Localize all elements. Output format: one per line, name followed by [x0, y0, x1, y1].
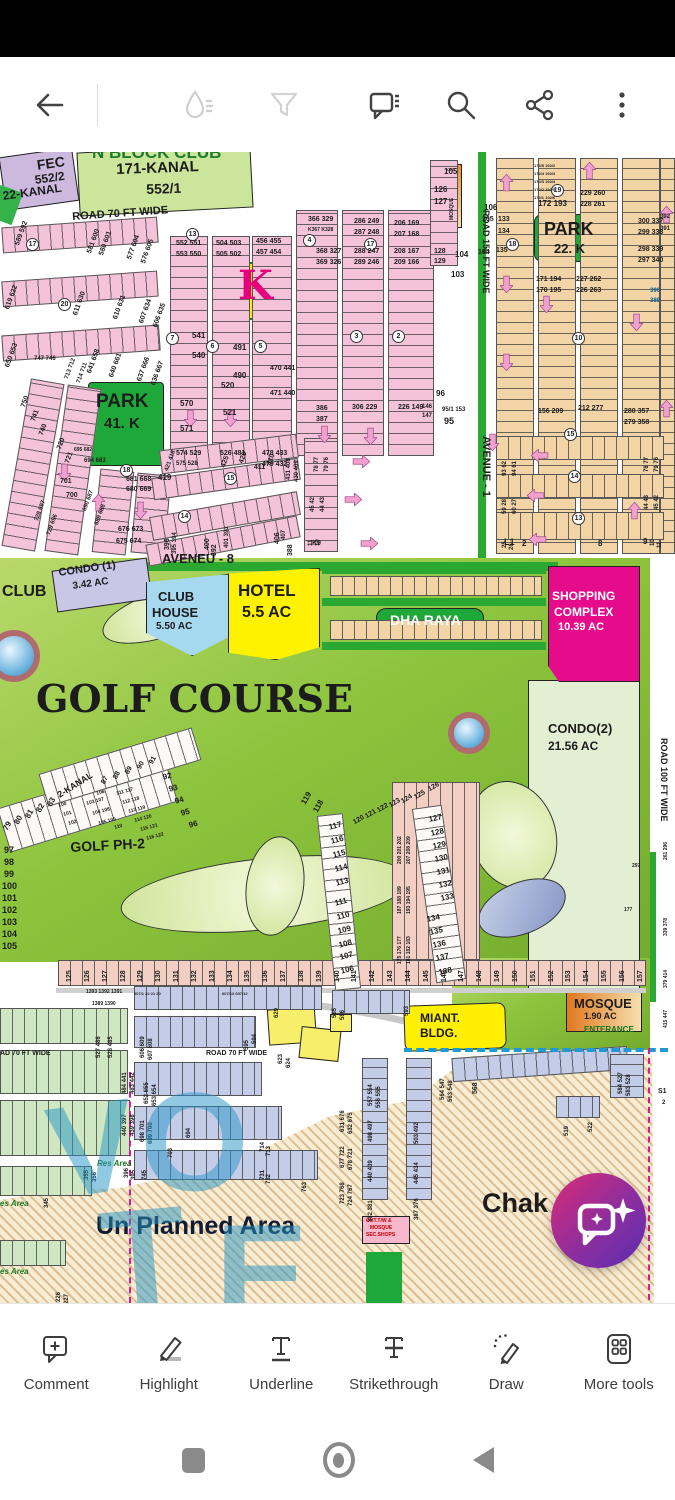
- comments-list-icon[interactable]: [366, 87, 402, 123]
- plot-label: 636 667: [150, 360, 165, 386]
- plot-label: 207 208 209: [407, 836, 412, 864]
- plot-label: 575 528: [176, 461, 198, 467]
- golf-course-area-2: [452, 958, 650, 1050]
- plot-label: 141: [351, 970, 358, 982]
- plot-strip: [134, 1150, 318, 1180]
- plot-label: 731: [260, 1170, 266, 1180]
- plot-label: es Area: [0, 1268, 29, 1276]
- plot-label: 114: [334, 863, 349, 874]
- plot-label: 593: [404, 1006, 410, 1016]
- plot-label: 568: [472, 1082, 479, 1094]
- back-button[interactable]: [473, 1447, 494, 1473]
- plot-label: 79 76: [324, 457, 330, 472]
- plot-label: 144: [405, 970, 412, 982]
- plot-label: 156: [619, 970, 626, 982]
- plot-label: 387: [316, 416, 328, 423]
- plot-label: 135: [244, 970, 251, 982]
- plot-label: 142: [369, 970, 376, 982]
- k-marker-letter: K: [238, 266, 273, 306]
- plot-label: L1: [504, 538, 515, 547]
- plot-label: 279 358: [624, 419, 649, 426]
- plot-label: 206 169: [394, 220, 419, 227]
- plot-label: 390: [650, 288, 660, 294]
- direction-arrow: [500, 348, 513, 371]
- plot-label: 478 433: [262, 450, 287, 457]
- plot-label: 583 528: [626, 1074, 632, 1096]
- plot-label: 140: [334, 970, 341, 982]
- plot-label: 155: [601, 970, 608, 982]
- plot-label: 95/1 153: [442, 407, 465, 413]
- status-bar: [0, 0, 675, 57]
- avenue8-label: AVENEU - 8: [162, 552, 234, 565]
- plot-strip: [170, 236, 208, 454]
- strikethrough-tool[interactable]: Strikethrough: [338, 1304, 451, 1421]
- plot-label: 100: [2, 882, 17, 891]
- plot-label: 440 439: [368, 1160, 374, 1182]
- plot-strip: [332, 990, 410, 1014]
- plot-label: 2-KANAL: [56, 771, 94, 800]
- direction-arrow: [364, 422, 377, 445]
- plot-label: ROAD 70 FT WIDE: [206, 1050, 267, 1057]
- plot-label: 104: [2, 930, 17, 939]
- search-icon[interactable]: [444, 88, 478, 122]
- plot-label: 280 357: [624, 408, 649, 415]
- plot-label: 132: [191, 970, 198, 982]
- plot-label: 152: [548, 970, 555, 982]
- plot-strip: [252, 236, 292, 454]
- yellow-patch: [298, 1026, 341, 1062]
- plot-strip: [392, 782, 480, 960]
- plot-label: 426: [238, 451, 249, 464]
- plot-label: 556 555: [376, 1086, 382, 1108]
- plot-strip: [538, 158, 576, 554]
- pond: [0, 630, 40, 682]
- plot-label: 678 721: [348, 1148, 354, 1170]
- plot-label: 130: [434, 853, 449, 864]
- direction-arrow: [355, 537, 378, 550]
- plot-label: 11: [308, 540, 314, 546]
- plot-label: 521: [223, 409, 236, 417]
- plot-label: 124: [400, 793, 414, 805]
- draw-tool-label: Draw: [489, 1376, 524, 1393]
- svg-text:DHA: DHA: [350, 806, 433, 839]
- plot-label: 172 193: [538, 200, 567, 208]
- toolbar-divider: [97, 84, 98, 126]
- plot-label: 526 481: [220, 450, 245, 457]
- plot-label: 120: [352, 814, 366, 826]
- yellow-patch: [330, 1014, 352, 1032]
- plot-label: 172/3 192/4: [534, 180, 555, 184]
- annotation-toolbar: Comment Highlight Underline Strikethroug…: [0, 1303, 675, 1421]
- plot-label: 172/2 192/5: [534, 188, 555, 192]
- underline-icon: [264, 1332, 298, 1366]
- plot-strip: [342, 210, 384, 456]
- plot-label: 93: [168, 784, 179, 794]
- overflow-menu-icon[interactable]: [610, 88, 634, 122]
- plot-label: 439 398: [130, 1114, 136, 1136]
- dha-raya-box: [376, 608, 484, 632]
- chat-sparkle-icon: [551, 1173, 646, 1268]
- plot-label: 113 119: [128, 805, 146, 814]
- recents-button[interactable]: [182, 1448, 205, 1473]
- plot-label: 1.90 AC: [584, 1012, 617, 1021]
- direction-arrow: [527, 489, 550, 502]
- plot-label: 112 118: [122, 796, 140, 805]
- road-number-badge: 20: [58, 298, 71, 311]
- plot-label: 87: [100, 775, 110, 785]
- plot-strip: [1, 271, 158, 308]
- plot-label: 127: [428, 813, 443, 824]
- dha-green-bar: [322, 598, 546, 606]
- plot-label: 745: [142, 1170, 148, 1180]
- plot-label: 181 182 183: [407, 936, 412, 964]
- watermark-letter: E: [215, 1204, 308, 1303]
- draw-tool[interactable]: Draw: [450, 1304, 563, 1421]
- plot-label: 703: [168, 1148, 174, 1158]
- plot-label: 610 631: [112, 294, 127, 320]
- plot-label: 110: [114, 824, 123, 831]
- plot-label: 300 337: [638, 218, 663, 225]
- dha-raya-label: DHA RAYA: [390, 613, 461, 627]
- plot-label: 606 609: [140, 1036, 146, 1058]
- plot-label: 128: [120, 970, 127, 982]
- fec-label: FEC: [36, 154, 66, 172]
- enterance-label: ENTERANCE: [584, 1026, 634, 1034]
- plot-label: 187 188 189: [398, 886, 403, 914]
- plot-label: 445 434: [414, 1162, 420, 1184]
- plot-label: 410: [266, 453, 277, 466]
- road150-label: ROAD 150 FT WIDE: [481, 210, 490, 294]
- direction-arrow: [583, 162, 596, 185]
- condo1-label: CONDO (1): [58, 560, 116, 579]
- plot-strip: [412, 805, 466, 983]
- plot-label: 95: [180, 808, 191, 818]
- plot-label: 80: [13, 814, 24, 826]
- plot-label: 356: [92, 1172, 98, 1182]
- boundary-pink-dashdot: [648, 1048, 650, 1300]
- clubhouse-area: [146, 574, 230, 656]
- road-number-badge: 5: [254, 340, 267, 353]
- plot-label: 411: [254, 464, 265, 471]
- plot-label: 552/1: [146, 181, 182, 196]
- plot-strip: [159, 434, 299, 475]
- plot-label: 105: [444, 168, 457, 176]
- plot-label: 540: [192, 352, 205, 360]
- pond: [448, 712, 490, 754]
- road-number-badge: 18: [506, 238, 519, 251]
- share-icon[interactable]: [522, 87, 558, 123]
- road-number-badge: 4: [303, 234, 316, 247]
- plot-strip: [622, 158, 660, 554]
- direction-arrow: [92, 494, 105, 517]
- plot-label: 101: [2, 894, 17, 903]
- unplanned-label: Un Planned Area: [96, 1214, 295, 1239]
- plot-label: 79: [2, 820, 13, 832]
- direction-arrow: [224, 404, 237, 427]
- plot-label: 44 43: [320, 497, 326, 512]
- plot-label: SEC.SHOPS: [366, 1233, 395, 1238]
- app-toolbar: [0, 57, 675, 152]
- road-number-badge: 14: [178, 510, 191, 523]
- plot-label: HOUSE: [152, 606, 198, 619]
- more-tools-label: More tools: [584, 1376, 654, 1393]
- plot-label: 586: [340, 1010, 346, 1020]
- plot-label: es Area: [0, 1200, 29, 1208]
- plot-label: 396: [164, 538, 171, 550]
- plot-strip: [330, 576, 542, 596]
- plot-label: 45 42: [310, 497, 316, 512]
- comment-plus-icon: [39, 1332, 73, 1366]
- plot-label: 143: [387, 970, 394, 982]
- plot-label: 677 722: [340, 1146, 346, 1168]
- plot-label: 750: [20, 395, 31, 408]
- plot-label: 401 391: [224, 526, 230, 548]
- shopping-area: [548, 566, 640, 682]
- plot-label: 137: [435, 952, 450, 963]
- plot-label: 119: [300, 791, 313, 806]
- road-number-badge: 3: [350, 330, 363, 343]
- golf-blob: [96, 575, 224, 656]
- plot-label: 2: [522, 540, 526, 548]
- plot-label: 505 502: [216, 251, 241, 258]
- plot-label: 699 700: [148, 1122, 154, 1144]
- plot-label: 490: [233, 372, 246, 380]
- plot-label: 130: [155, 970, 162, 982]
- plot-label: MOSQUE: [450, 198, 455, 220]
- plot-label: 122: [376, 802, 390, 814]
- road100-label: ROAD 100 FT WIDE: [659, 738, 668, 822]
- comment-tool[interactable]: Comment: [0, 1304, 113, 1421]
- plot-label: 126: [84, 970, 91, 982]
- plot-label: 400: [204, 538, 211, 550]
- plot-label: 456 455: [256, 238, 281, 245]
- plot-strip: [388, 210, 434, 456]
- plot-label: 102: [68, 820, 77, 827]
- park-41k: [88, 382, 164, 466]
- plot-label: 729 696: [46, 514, 59, 536]
- plot-strip: [58, 960, 646, 986]
- plot-label: 104: [455, 251, 468, 259]
- plot-label: 106: [340, 965, 355, 976]
- plot-strip: [296, 210, 338, 456]
- plot-strip: [406, 1058, 432, 1200]
- plot-label: 611 630: [72, 291, 87, 317]
- plot-strip: [0, 1100, 130, 1156]
- plot-label: 129: [137, 970, 144, 982]
- plot-label: 147: [458, 970, 465, 982]
- more-tools-grid-icon: [602, 1332, 636, 1366]
- plot-label: 607 608: [148, 1038, 154, 1060]
- plot-label: 229 260: [580, 190, 605, 197]
- plot-label: 207 168: [394, 231, 419, 238]
- plot-label: 105: [482, 216, 494, 223]
- filter-icon[interactable]: [267, 88, 301, 122]
- plot-label: 355: [84, 1170, 90, 1180]
- plot-label: 391: [660, 226, 670, 232]
- plot-label: 396: [124, 1168, 130, 1178]
- plot-label: 95: [444, 417, 454, 426]
- strikethrough-tool-label: Strikethrough: [349, 1376, 438, 1393]
- phase-boundary-blue-dashed: [404, 1048, 668, 1052]
- plot-label: 134: [498, 228, 510, 235]
- plot-label: 94: [174, 796, 185, 806]
- plot-label: 589 592: [14, 220, 29, 246]
- plot-label: 96: [188, 820, 199, 830]
- plot-label: 763: [302, 1182, 308, 1192]
- direction-arrow: [540, 290, 553, 313]
- plot-label: 641 658: [86, 348, 101, 374]
- plot-label: 3.42 AC: [72, 577, 109, 592]
- plot-label: 690 687: [82, 490, 95, 512]
- road-number-badge: 6: [206, 340, 219, 353]
- plot-label: 114 120: [134, 814, 152, 823]
- plot-label: 137: [280, 970, 287, 982]
- plot-label: 5.5 AC: [242, 605, 291, 621]
- plot-strip: [0, 757, 178, 852]
- plot-strip: [0, 1240, 66, 1266]
- highlight-tool[interactable]: Highlight: [113, 1304, 226, 1421]
- home-button[interactable]: [323, 1442, 355, 1478]
- plot-label: 675 674: [116, 538, 141, 545]
- plot-strip: [0, 1050, 128, 1094]
- map-document[interactable]: DHA 13417176532720181910151413181514N BL…: [0, 152, 675, 1303]
- plot-label: 106: [484, 204, 497, 212]
- cut-block-title: N BLOCK CLUB: [92, 152, 221, 161]
- plot-label: 571: [180, 425, 193, 433]
- plot-label: 714 711: [76, 362, 89, 384]
- plot-label: 606 635: [152, 302, 167, 328]
- plot-label: 22. K: [554, 242, 585, 255]
- highlight-tool-label: Highlight: [140, 1376, 198, 1393]
- plot-label: 212 277: [578, 405, 603, 412]
- direction-arrow: [58, 458, 71, 481]
- plot-label: 118: [312, 799, 325, 814]
- plot-label: 389: [650, 298, 660, 304]
- plot-label: 133: [209, 970, 216, 982]
- plot-label: 379 414: [664, 970, 669, 988]
- plot-label: 226: [56, 1292, 62, 1302]
- plot-label: 676 673: [118, 526, 143, 533]
- plot-label: 297: [632, 864, 640, 869]
- plot-label: 368 327: [316, 248, 341, 255]
- blue-wedge: [646, 252, 675, 422]
- plot-label: 98: [4, 858, 14, 867]
- plot-label: 1393 1392 1391: [86, 990, 122, 995]
- ai-assistant-fab[interactable]: [551, 1173, 646, 1268]
- plot-label: 125: [66, 970, 73, 982]
- plot-label: 631 676: [340, 1110, 346, 1132]
- plot-label: 138: [298, 970, 305, 982]
- plot-label: 431 408: [286, 458, 292, 480]
- k-marker-box: [226, 262, 280, 320]
- plot-label: 131: [436, 866, 451, 877]
- road-number-badge: 2: [392, 330, 405, 343]
- plot-label: 148: [476, 970, 483, 982]
- plot-label: 101: [63, 811, 72, 818]
- plot-label: 483 442: [130, 1072, 136, 1094]
- underline-tool[interactable]: Underline: [225, 1304, 338, 1421]
- plot-label: 624: [286, 1058, 292, 1068]
- plot-label: 129: [434, 258, 446, 265]
- plot-label: 123: [388, 797, 402, 809]
- plot-label: 44 43: [644, 495, 650, 510]
- plot-label: 22-KANAL: [2, 182, 62, 202]
- back-icon[interactable]: [32, 88, 66, 122]
- plot-label: 298 339: [638, 246, 663, 253]
- plot-label: COMPLEX: [554, 606, 613, 618]
- plot-label: 577 604: [126, 234, 141, 260]
- plot-label: 133: [498, 216, 510, 223]
- plot-label: 59 28: [502, 499, 508, 514]
- plot-label: 150: [512, 970, 519, 982]
- plot-label: 261 296: [664, 842, 669, 860]
- direction-arrow: [529, 533, 552, 546]
- draw-pencil-icon: [489, 1332, 523, 1366]
- plot-label: 146: [441, 970, 448, 982]
- hotel-label: HOTEL: [238, 582, 296, 599]
- direction-arrow: [500, 270, 513, 293]
- plot-label: 128: [430, 827, 445, 838]
- underline-tool-label: Underline: [249, 1376, 313, 1393]
- plot-strip: [430, 160, 458, 266]
- plot-strip: [1, 217, 158, 254]
- plot-label: 60 27: [512, 499, 518, 514]
- plot-label: 9: [643, 538, 647, 546]
- plot-label: 145: [423, 970, 430, 982]
- plot-label: 694 683: [84, 458, 106, 464]
- road-number-badge: 19: [551, 184, 564, 197]
- plot-label: 580 601: [98, 230, 113, 256]
- plot-label: 100: [58, 802, 67, 809]
- plot-label: 228 261: [580, 201, 605, 208]
- mosque-area: [566, 992, 642, 1032]
- plot-label: 107: [339, 951, 354, 962]
- condo2-label: CONDO(2): [548, 722, 612, 735]
- strikethrough-icon: [377, 1332, 411, 1366]
- dha-watermark-logo: DHA: [300, 708, 476, 839]
- plot-label: 728 697: [34, 500, 47, 522]
- plot-strip: [317, 813, 361, 991]
- plot-label: 629: [274, 1008, 280, 1018]
- plot-label: 479 432: [262, 461, 287, 468]
- plot-strip: [496, 158, 534, 554]
- plot-label: 395 394: [172, 532, 178, 554]
- plot-label: 208 167: [394, 248, 419, 255]
- plot-label: 430 409: [294, 460, 300, 482]
- plot-label: 105: [2, 942, 17, 951]
- plot-label: 104: [478, 249, 490, 256]
- plot-label: 695 682: [74, 448, 92, 453]
- plot-label: 153: [565, 970, 572, 982]
- golf-blob: [239, 832, 310, 939]
- plot-label: 581 600: [86, 228, 101, 254]
- plot-label: 111: [334, 897, 348, 908]
- plot-label: 8: [598, 540, 602, 548]
- plot-label: 89: [124, 765, 134, 775]
- plot-label: 289 246: [354, 259, 379, 266]
- plot-label: 121: [364, 808, 378, 820]
- block-fec: [0, 152, 79, 211]
- plot-label: 619 622: [4, 284, 19, 310]
- road-number-badge: 10: [572, 332, 585, 345]
- plot-label: 694: [186, 1128, 192, 1138]
- plot-label: 594: [252, 1034, 258, 1044]
- ink-signature-icon[interactable]: [182, 88, 216, 122]
- plot-label: 680 669: [126, 486, 151, 493]
- more-tools[interactable]: More tools: [563, 1304, 675, 1421]
- plot-label: 96: [436, 390, 445, 398]
- plot-label: 111 117: [116, 788, 134, 797]
